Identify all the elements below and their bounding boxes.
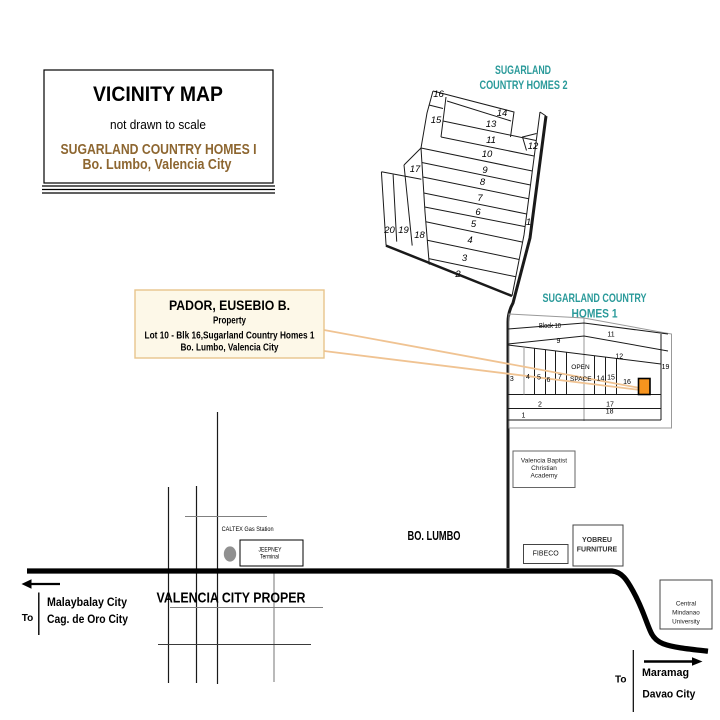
svg-text:15: 15 xyxy=(431,115,442,126)
svg-text:2: 2 xyxy=(454,269,461,280)
svg-text:Valencia Baptist: Valencia Baptist xyxy=(521,458,567,465)
svg-text:10: 10 xyxy=(482,149,493,160)
svg-text:HOMES 1: HOMES 1 xyxy=(572,307,618,321)
svg-text:COUNTRY HOMES 2: COUNTRY HOMES 2 xyxy=(480,78,568,92)
svg-text:5: 5 xyxy=(471,219,477,230)
svg-text:Bo. Lumbo, Valencia City: Bo. Lumbo, Valencia City xyxy=(83,157,232,173)
svg-text:VALENCIA CITY PROPER: VALENCIA CITY PROPER xyxy=(157,590,306,607)
svg-text:YOBREU: YOBREU xyxy=(582,537,612,544)
svg-text:16: 16 xyxy=(433,89,444,100)
svg-text:11: 11 xyxy=(607,332,614,339)
svg-text:Academy: Academy xyxy=(530,473,558,480)
svg-text:BO. LUMBO: BO. LUMBO xyxy=(408,529,461,543)
svg-text:FIBECO: FIBECO xyxy=(533,551,560,558)
svg-text:SUGARLAND: SUGARLAND xyxy=(495,63,551,77)
svg-text:18: 18 xyxy=(414,230,425,241)
svg-text:University: University xyxy=(672,619,700,626)
svg-text:14: 14 xyxy=(597,376,605,383)
svg-text:not drawn to scale: not drawn to scale xyxy=(110,117,206,132)
svg-text:15: 15 xyxy=(607,375,615,382)
svg-text:1: 1 xyxy=(526,217,531,228)
svg-text:Malaybalay City: Malaybalay City xyxy=(47,597,128,609)
svg-text:8: 8 xyxy=(480,177,486,188)
svg-text:4: 4 xyxy=(467,235,472,246)
svg-text:18: 18 xyxy=(606,409,614,416)
svg-text:PADOR, EUSEBIO B.: PADOR, EUSEBIO B. xyxy=(169,298,290,313)
svg-text:3: 3 xyxy=(510,376,514,383)
svg-text:Central: Central xyxy=(676,601,696,608)
svg-text:4: 4 xyxy=(526,374,530,381)
svg-text:SUGARLAND COUNTRY HOMES I: SUGARLAND COUNTRY HOMES I xyxy=(61,142,257,158)
svg-text:2: 2 xyxy=(538,402,542,409)
svg-text:9: 9 xyxy=(482,165,488,176)
svg-text:17: 17 xyxy=(410,164,421,175)
svg-text:3: 3 xyxy=(462,253,468,264)
svg-text:11: 11 xyxy=(486,135,496,146)
svg-text:17: 17 xyxy=(606,402,614,409)
svg-text:Christian: Christian xyxy=(531,465,557,472)
svg-text:16: 16 xyxy=(623,379,631,386)
svg-text:19: 19 xyxy=(398,225,409,236)
svg-text:13: 13 xyxy=(486,119,497,130)
svg-text:1: 1 xyxy=(522,413,526,420)
svg-text:SUGARLAND COUNTRY: SUGARLAND COUNTRY xyxy=(543,291,647,305)
svg-text:FURNITURE: FURNITURE xyxy=(577,547,618,554)
svg-text:OPEN: OPEN xyxy=(571,364,590,371)
svg-text:14: 14 xyxy=(497,108,508,119)
svg-text:Maramag: Maramag xyxy=(642,667,689,679)
svg-text:19: 19 xyxy=(662,364,670,371)
svg-text:To: To xyxy=(615,675,626,686)
svg-text:To: To xyxy=(22,613,33,624)
svg-text:6: 6 xyxy=(475,207,481,218)
svg-text:Bo. Lumbo, Valencia City: Bo. Lumbo, Valencia City xyxy=(181,342,279,354)
svg-text:VICINITY MAP: VICINITY MAP xyxy=(93,82,223,106)
svg-text:Lot 10 - Blk 16,Sugarland Coun: Lot 10 - Blk 16,Sugarland Country Homes … xyxy=(145,331,315,342)
svg-text:9: 9 xyxy=(557,338,561,345)
svg-text:7: 7 xyxy=(477,193,483,204)
svg-text:Mindanao: Mindanao xyxy=(672,610,700,617)
svg-text:7: 7 xyxy=(558,374,562,381)
svg-text:Davao City: Davao City xyxy=(642,689,696,701)
svg-text:20: 20 xyxy=(383,225,395,236)
svg-text:Property: Property xyxy=(213,315,246,327)
svg-text:Block 10: Block 10 xyxy=(539,323,561,330)
svg-text:12: 12 xyxy=(615,354,623,361)
svg-text:5: 5 xyxy=(537,375,541,382)
svg-text:Terminal: Terminal xyxy=(260,554,279,561)
svg-text:CALTEX Gas Station: CALTEX Gas Station xyxy=(222,526,274,533)
svg-text:SPACE: SPACE xyxy=(570,376,592,383)
svg-text:6: 6 xyxy=(547,377,551,384)
svg-text:12: 12 xyxy=(528,141,539,152)
svg-text:JEEPNEY: JEEPNEY xyxy=(259,547,282,554)
svg-text:Cag. de Oro City: Cag. de Oro City xyxy=(47,614,129,626)
